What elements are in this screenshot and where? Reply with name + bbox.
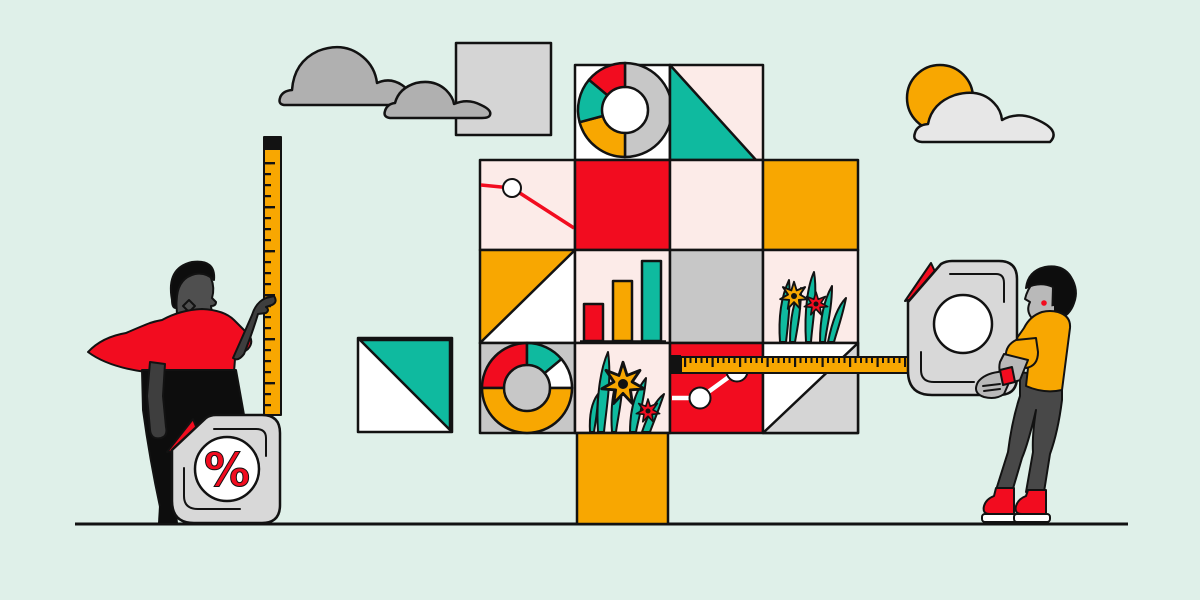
percent-device: % (167, 415, 280, 523)
bar (613, 281, 632, 341)
line-chart-node (503, 179, 521, 197)
tree-trunk (577, 433, 668, 524)
illustration-stage: % (0, 0, 1200, 600)
arm-hanging (147, 362, 166, 438)
flower-center (618, 379, 628, 389)
vertical-ruler (264, 137, 281, 415)
grey-square (456, 43, 551, 135)
percent-label: % (204, 443, 250, 497)
tile-grey (670, 250, 763, 343)
teal-triangle-square (358, 338, 452, 432)
boot-sole (982, 514, 1018, 522)
ruler-cap (264, 137, 281, 150)
tape-reel (934, 295, 992, 353)
tile-pink (670, 160, 763, 250)
bar (584, 304, 603, 341)
tile-line-chart (480, 160, 575, 250)
bar (642, 261, 661, 341)
illustration-canvas: % (0, 0, 1200, 600)
flower-center (646, 409, 651, 414)
flower-center (791, 293, 797, 299)
tape-end-hook (669, 355, 681, 374)
boot-sole (1014, 514, 1050, 522)
line-chart-node (690, 388, 711, 409)
tile-red (575, 160, 670, 250)
earring-icon (1041, 300, 1047, 306)
tape-measure-blade (669, 355, 909, 374)
ruler-body (264, 137, 281, 415)
wristband (1000, 367, 1015, 385)
flower-center (814, 302, 819, 307)
tile-orange (763, 160, 858, 250)
